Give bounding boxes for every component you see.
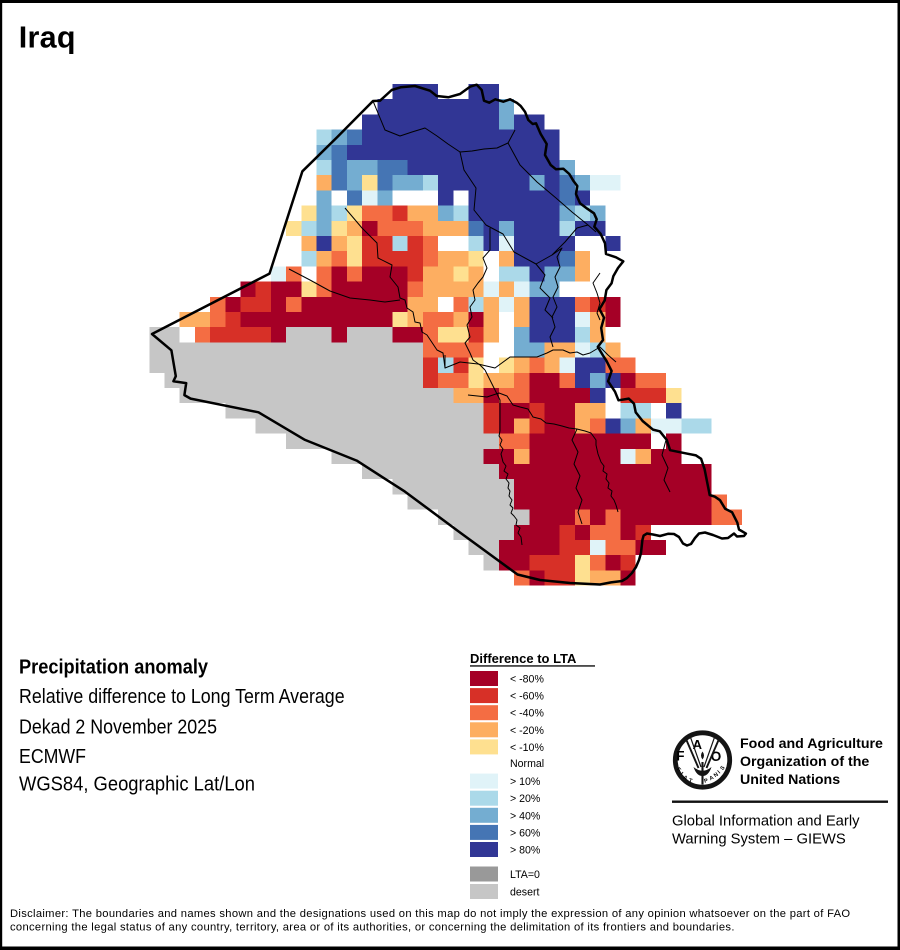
svg-text:> 10%: > 10%: [510, 776, 541, 788]
svg-text:concerning the legal status of: concerning the legal status of any count…: [10, 922, 735, 934]
svg-text:Warning System – GIEWS: Warning System – GIEWS: [672, 832, 846, 848]
svg-text:Difference to LTA: Difference to LTA: [470, 651, 577, 666]
svg-text:F: F: [676, 749, 684, 764]
svg-text:ECMWF: ECMWF: [19, 746, 86, 768]
svg-text:LTA=0: LTA=0: [510, 869, 540, 881]
svg-text:Iraq: Iraq: [19, 21, 76, 55]
svg-text:< -60%: < -60%: [510, 691, 544, 703]
svg-text:desert: desert: [510, 887, 539, 899]
svg-text:< -40%: < -40%: [510, 708, 544, 720]
svg-text:Precipitation anomaly: Precipitation anomaly: [19, 656, 209, 678]
svg-text:United Nations: United Nations: [740, 772, 840, 788]
svg-text:> 80%: > 80%: [510, 845, 541, 857]
svg-text:Relative difference to Long Te: Relative difference to Long Term Average: [19, 686, 345, 708]
svg-text:Normal: Normal: [510, 758, 544, 770]
svg-text:> 40%: > 40%: [510, 810, 541, 822]
svg-text:Disclaimer: The boundaries and: Disclaimer: The boundaries and names sho…: [10, 908, 850, 920]
svg-text:WGS84, Geographic Lat/Lon: WGS84, Geographic Lat/Lon: [19, 774, 255, 796]
svg-text:Dekad 2 November 2025: Dekad 2 November 2025: [19, 717, 217, 739]
svg-text:< -80%: < -80%: [510, 674, 544, 686]
svg-text:Global Information and Early: Global Information and Early: [672, 814, 860, 830]
svg-text:< -20%: < -20%: [510, 725, 544, 737]
svg-text:> 20%: > 20%: [510, 793, 541, 805]
svg-text:A: A: [693, 737, 703, 752]
svg-text:< -10%: < -10%: [510, 742, 544, 754]
svg-text:Organization of the: Organization of the: [740, 754, 869, 770]
svg-text:Food and Agriculture: Food and Agriculture: [740, 736, 883, 752]
svg-text:> 60%: > 60%: [510, 827, 541, 839]
